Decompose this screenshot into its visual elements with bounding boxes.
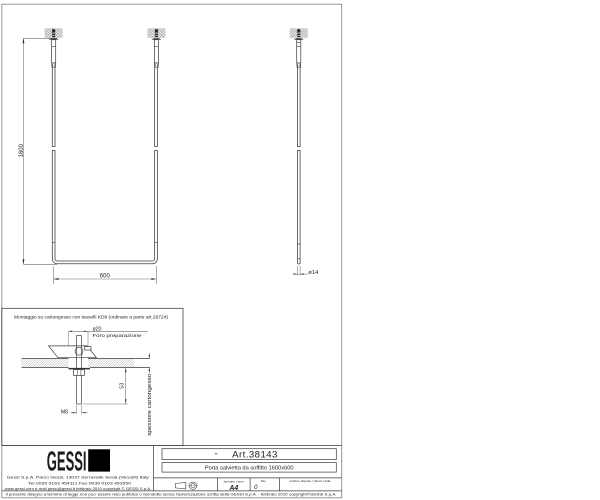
svg-text:Tel.0039 0163 454111 Fax.0039: Tel.0039 0163 454111 Fax.0039 0163 45355… — [28, 481, 132, 486]
svg-text:Gessi S.p.A. Parco Gessi, 1303: Gessi S.p.A. Parco Gessi, 13037 Serraval… — [7, 475, 149, 480]
svg-text:formato / size: formato / size — [224, 480, 245, 484]
svg-text:Porta salvietta da soffitto 16: Porta salvietta da soffitto 1600x600 — [205, 466, 294, 472]
svg-text:1600: 1600 — [19, 143, 25, 157]
svg-text:53: 53 — [120, 383, 126, 389]
svg-text:spessore cartongesso: spessore cartongesso — [147, 374, 153, 436]
svg-text:www.gessi.com e-mail gessi@ges: www.gessi.com e-mail gessi@gessi.it febb… — [5, 486, 152, 491]
svg-text:ø20: ø20 — [93, 327, 102, 333]
svg-text:-: - — [215, 449, 218, 460]
svg-text:600: 600 — [100, 273, 111, 279]
svg-text:codice cliente / client code: codice cliente / client code — [290, 479, 332, 483]
svg-text:Foro preparazione: Foro preparazione — [93, 333, 142, 339]
svg-text:M8: M8 — [61, 410, 68, 416]
svg-text:ø14: ø14 — [308, 270, 319, 276]
svg-text:Art.38143: Art.38143 — [232, 449, 278, 460]
svg-text:Montaggio su cartongesso con t: Montaggio su cartongesso con tasselli KD… — [14, 314, 169, 319]
svg-text:Il presente disegno a termine: Il presente disegno a termine di legge n… — [6, 492, 337, 496]
svg-text:GESSI: GESSI — [47, 445, 87, 477]
svg-text:A4: A4 — [228, 485, 238, 492]
svg-text:Rev.: Rev. — [261, 479, 267, 483]
